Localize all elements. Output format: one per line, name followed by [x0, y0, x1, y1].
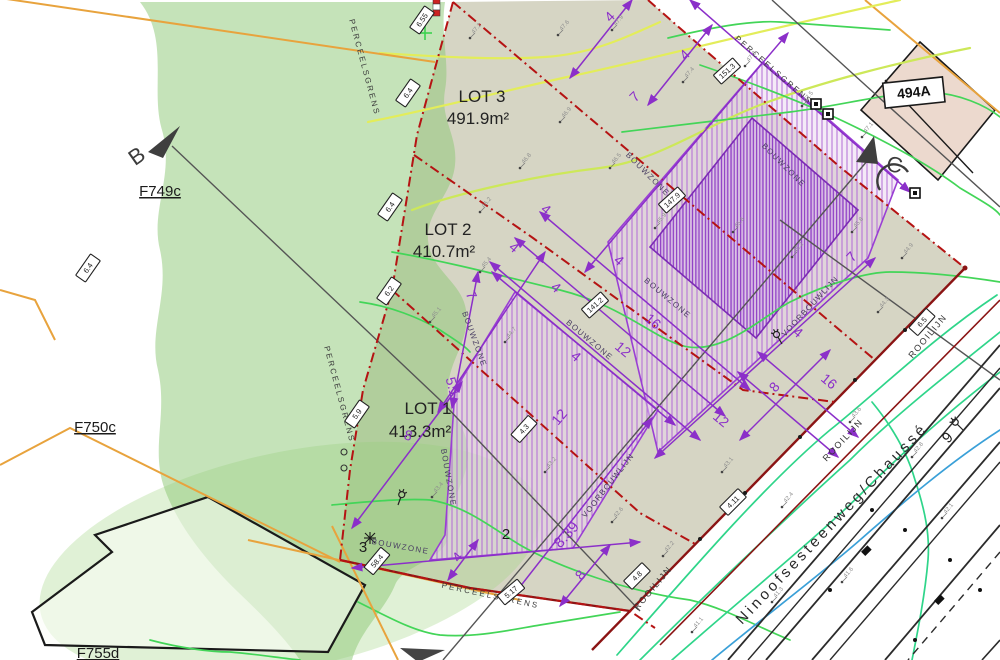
- lot2-area: 410.7m²: [413, 242, 476, 261]
- cadastral-plan-page: LOT 3 491.9m² LOT 2 410.7m² LOT 1 413.3m…: [0, 0, 1000, 660]
- point-number: 2: [502, 526, 510, 543]
- lot2-name: LOT 2: [425, 220, 472, 239]
- lot3-name: LOT 3: [459, 87, 506, 106]
- lot1-area: 413.3m²: [389, 422, 452, 441]
- parcel-label-f755d: F755d: [77, 645, 120, 660]
- lot1-name: LOT 1: [405, 399, 452, 418]
- corner-point: [963, 266, 968, 271]
- parcel-label-f749c: F749c: [139, 183, 181, 200]
- cadastral-plan: LOT 3 491.9m² LOT 2 410.7m² LOT 1 413.3m…: [0, 0, 1000, 660]
- parcel-label-f750c: F750c: [74, 419, 116, 436]
- point-number: 3: [359, 539, 367, 556]
- lot3-area: 491.9m²: [447, 109, 510, 128]
- parcel-label-494a: 494A: [883, 77, 945, 108]
